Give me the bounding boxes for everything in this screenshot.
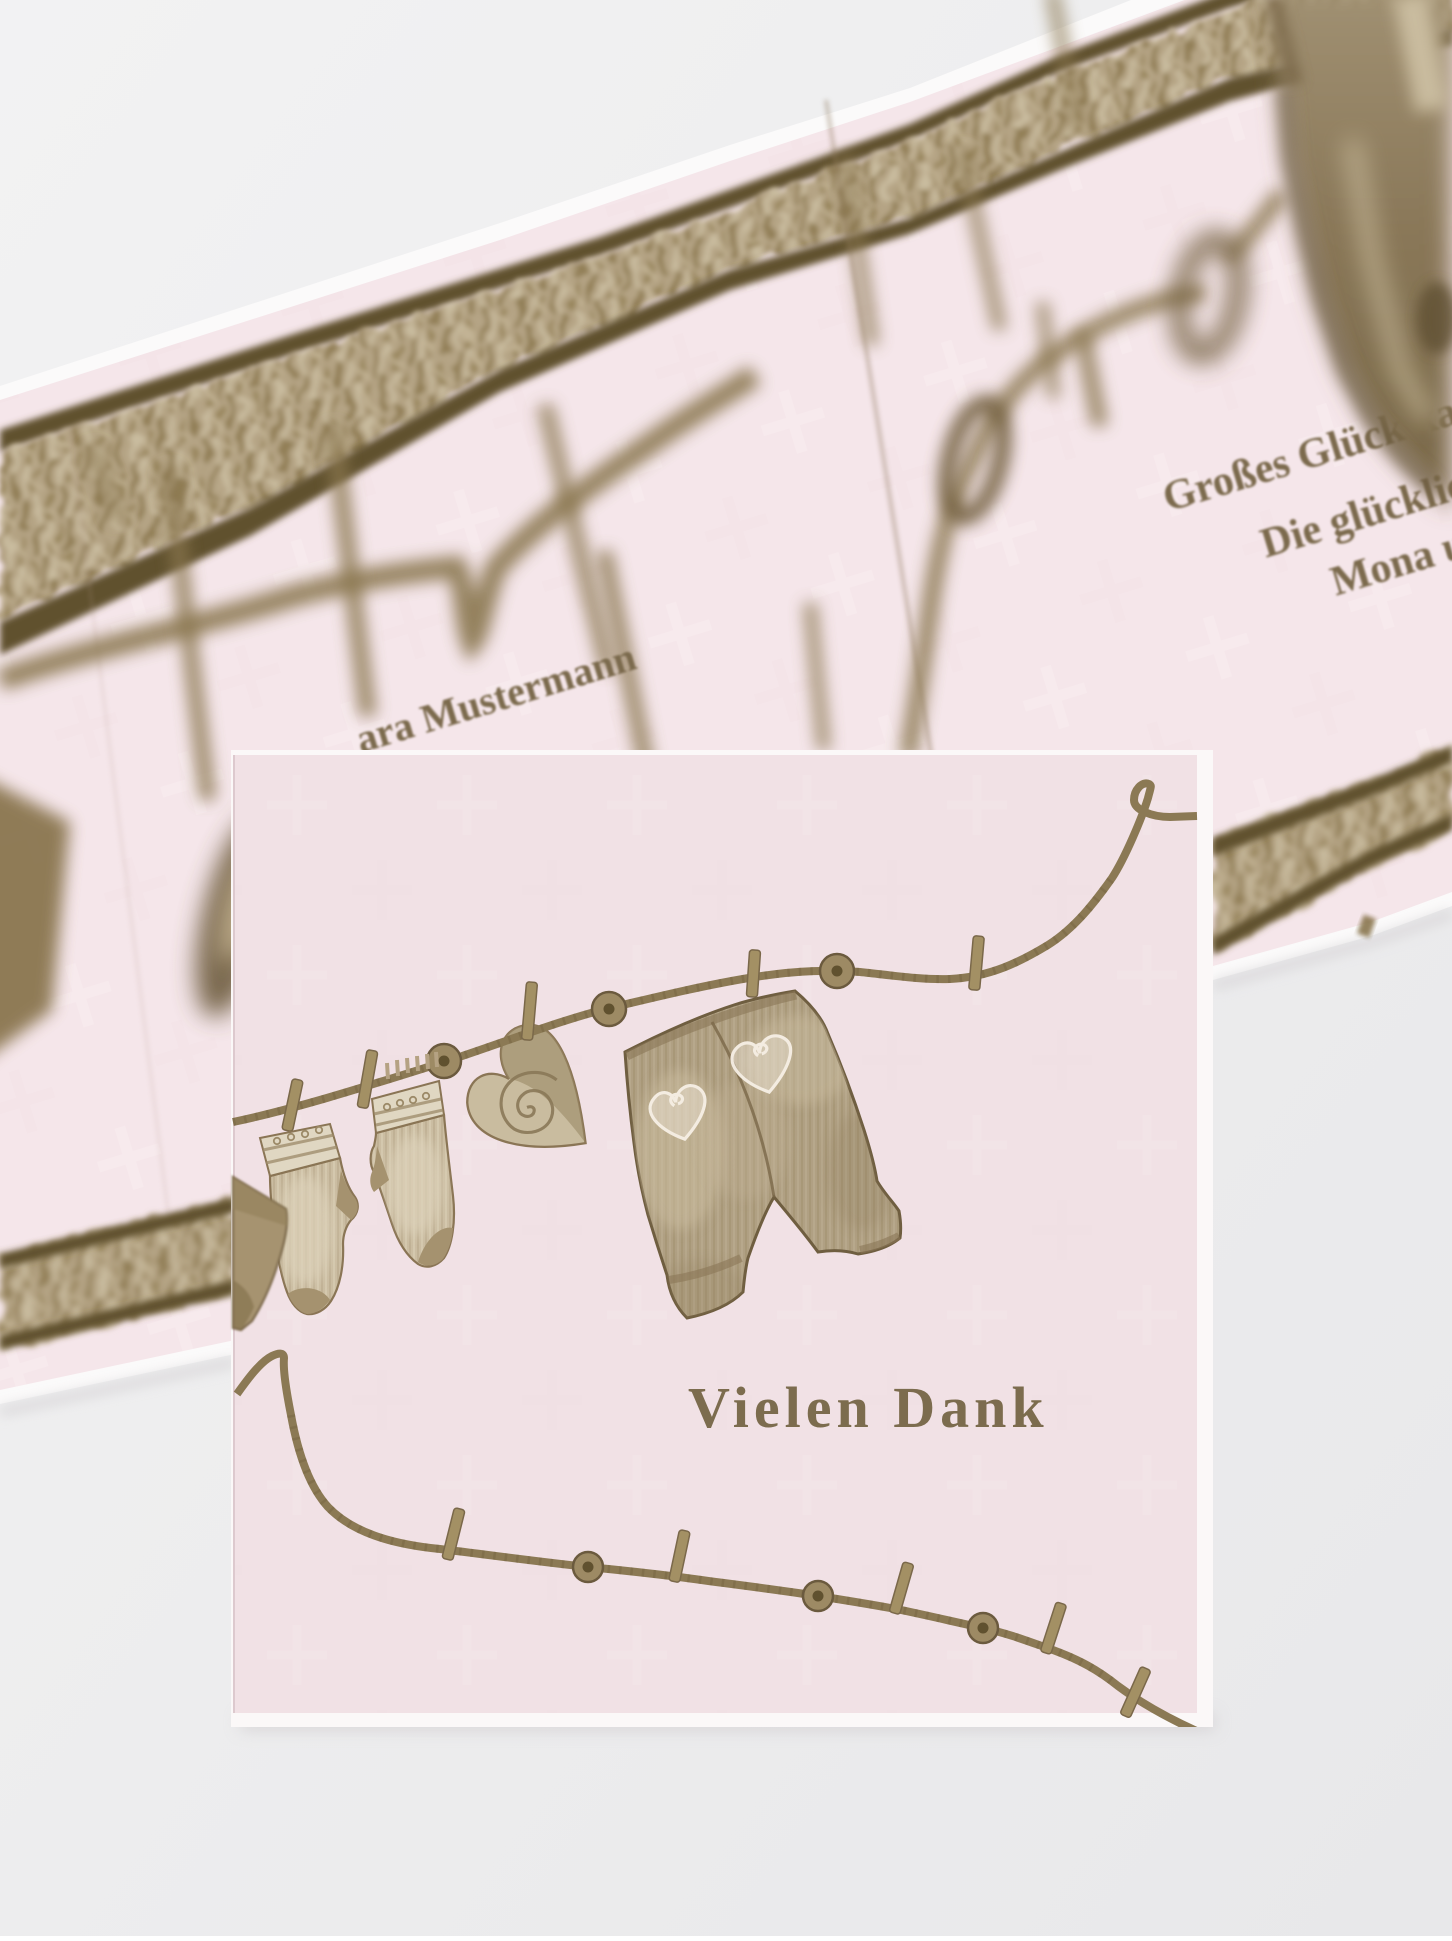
svg-text:Vielen Dank: Vielen Dank bbox=[688, 1375, 1049, 1440]
